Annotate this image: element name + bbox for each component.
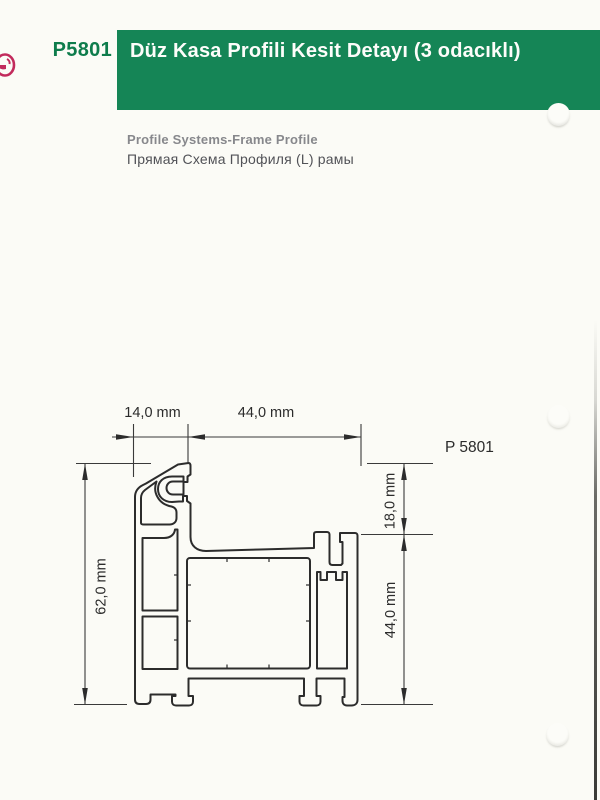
dim-label-height-top: 18,0 mm (383, 473, 399, 529)
punch-hole (546, 723, 569, 746)
dim-label-height-total: 62,0 mm (94, 558, 110, 614)
punch-hole (547, 103, 570, 126)
profile-code: P5801 (0, 39, 112, 62)
chamber-left-upper (143, 530, 178, 611)
catalog-page: P5801 Düz Kasa Profili Kesit Detayı (3 o… (0, 0, 600, 800)
dim-label-width-main: 44,0 mm (238, 405, 294, 421)
gasket-island (167, 482, 184, 495)
scan-edge-shadow (594, 0, 597, 800)
chamber-main (187, 558, 310, 669)
title-band: Düz Kasa Profili Kesit Detayı (3 odacıkl… (117, 30, 600, 110)
subtitle-english: Profile Systems-Frame Profile (127, 132, 318, 147)
punch-hole (547, 405, 570, 428)
technical-drawing: 14,0 mm 44,0 mm P 5801 62,0 mm 18,0 mm 4… (60, 393, 500, 723)
part-number-label: P 5801 (445, 439, 494, 456)
chamber-right (317, 572, 347, 669)
frame-profile-section (135, 463, 358, 706)
page-title: Düz Kasa Profili Kesit Detayı (3 odacıkl… (117, 30, 600, 63)
subtitle-russian: Прямая Схема Профиля (L) рамы (127, 151, 354, 167)
dim-label-height-main: 44,0 mm (383, 582, 399, 638)
chamber-left-lower (143, 617, 178, 670)
dim-label-width-left: 14,0 mm (124, 405, 180, 421)
